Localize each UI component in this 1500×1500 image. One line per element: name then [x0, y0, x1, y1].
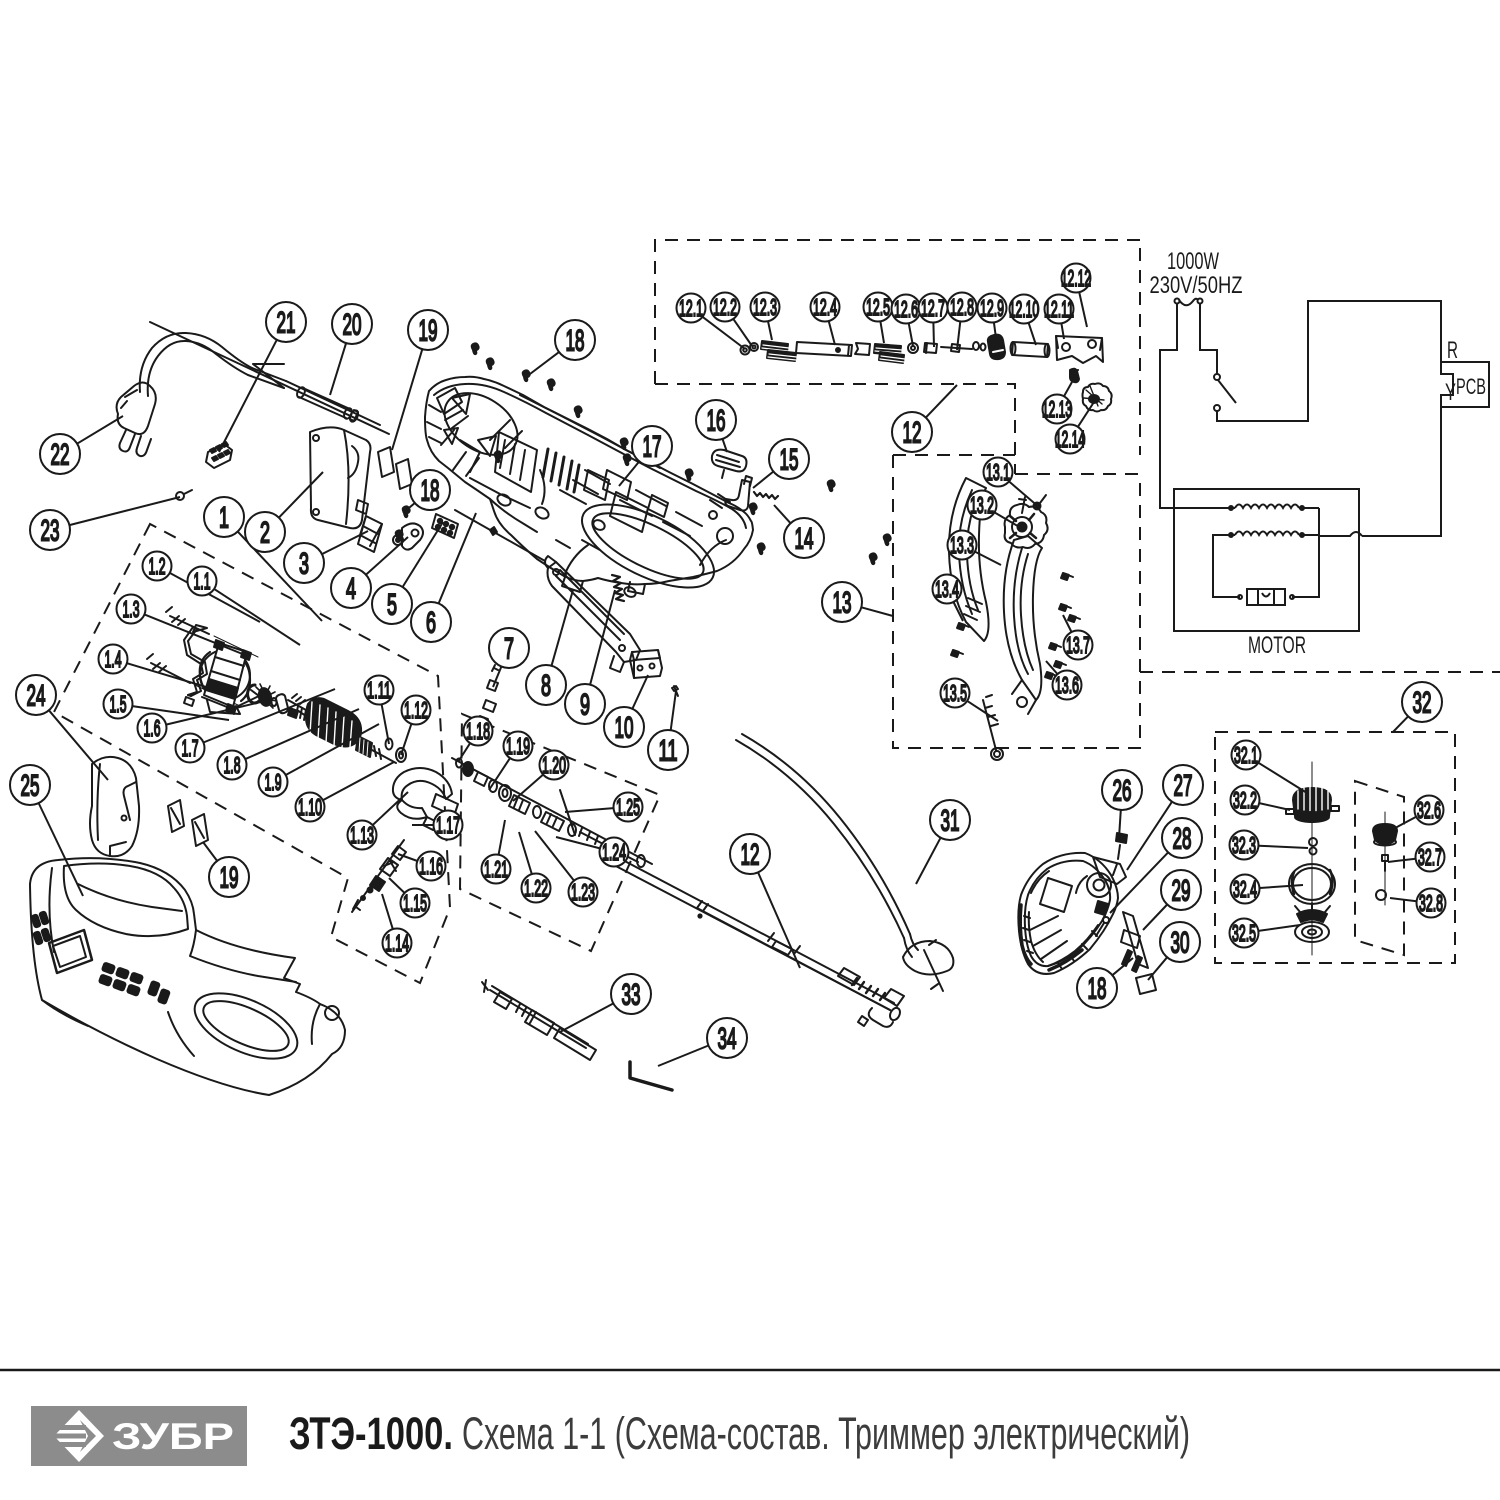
svg-text:18: 18: [1088, 973, 1107, 1006]
svg-text:11: 11: [659, 735, 678, 768]
svg-text:1.11: 1.11: [367, 677, 391, 703]
svg-text:21: 21: [277, 307, 296, 340]
svg-text:30: 30: [1171, 927, 1190, 960]
svg-text:7: 7: [504, 633, 514, 666]
svg-text:1.13: 1.13: [350, 822, 374, 848]
svg-text:1.9: 1.9: [265, 769, 282, 795]
svg-text:12.12: 12.12: [1061, 265, 1091, 291]
svg-text:1.22: 1.22: [524, 875, 548, 901]
svg-text:10: 10: [615, 712, 634, 745]
svg-text:Схема 1-1 (Схема-состав. Тримм: Схема 1-1 (Схема-состав. Триммер электри…: [462, 1408, 1190, 1459]
svg-text:1.8: 1.8: [224, 752, 241, 778]
svg-text:17: 17: [643, 431, 662, 464]
svg-text:5: 5: [387, 589, 397, 622]
svg-text:32: 32: [1413, 687, 1432, 720]
svg-text:25: 25: [21, 770, 40, 803]
svg-text:12.3: 12.3: [753, 294, 777, 320]
svg-text:15: 15: [780, 444, 799, 477]
svg-text:12.9: 12.9: [980, 295, 1004, 321]
svg-text:13.3: 13.3: [950, 532, 974, 558]
svg-text:12.6: 12.6: [894, 296, 918, 322]
svg-text:Y: Y: [1445, 379, 1456, 406]
svg-text:8: 8: [541, 670, 551, 703]
svg-text:32.5: 32.5: [1232, 920, 1256, 946]
svg-text:32.3: 32.3: [1232, 832, 1256, 858]
svg-text:1.1: 1.1: [194, 568, 211, 594]
svg-text:26: 26: [1113, 775, 1132, 808]
svg-text:13.4: 13.4: [935, 576, 959, 602]
svg-text:1.16: 1.16: [419, 853, 443, 879]
svg-text:29: 29: [1172, 875, 1191, 908]
svg-text:12.10: 12.10: [1009, 296, 1039, 322]
svg-text:1.25: 1.25: [616, 794, 640, 820]
svg-text:1.23: 1.23: [571, 879, 595, 905]
svg-text:1.15: 1.15: [403, 890, 427, 916]
svg-text:230V/50HZ: 230V/50HZ: [1150, 272, 1243, 299]
svg-text:22: 22: [51, 439, 70, 472]
svg-text:1.7: 1.7: [182, 735, 199, 761]
svg-text:1.6: 1.6: [144, 715, 161, 741]
svg-text:2: 2: [260, 517, 270, 550]
svg-text:12.8: 12.8: [950, 294, 974, 320]
svg-text:32.6: 32.6: [1417, 797, 1441, 823]
svg-text:1.10: 1.10: [298, 794, 322, 820]
svg-text:ЗТЭ-1000.: ЗТЭ-1000.: [289, 1408, 453, 1459]
svg-text:32.4: 32.4: [1233, 876, 1257, 902]
svg-text:1.21: 1.21: [484, 856, 508, 882]
svg-text:1.2: 1.2: [149, 553, 166, 579]
svg-text:16: 16: [707, 405, 726, 438]
svg-text:1.20: 1.20: [542, 752, 566, 778]
svg-text:33: 33: [622, 979, 641, 1012]
svg-text:32.8: 32.8: [1419, 890, 1443, 916]
svg-text:13: 13: [833, 587, 852, 620]
svg-text:32.7: 32.7: [1418, 844, 1442, 870]
svg-text:4: 4: [346, 573, 356, 606]
svg-text:1: 1: [219, 502, 229, 535]
svg-text:28: 28: [1173, 823, 1192, 856]
svg-text:32.2: 32.2: [1233, 787, 1257, 813]
svg-text:13.2: 13.2: [970, 492, 994, 518]
svg-text:1.24: 1.24: [602, 839, 626, 865]
svg-text:18: 18: [421, 475, 440, 508]
svg-text:34: 34: [718, 1023, 737, 1056]
svg-text:ЗУБР: ЗУБР: [112, 1416, 234, 1457]
svg-text:1.17: 1.17: [436, 812, 460, 838]
svg-text:19: 19: [419, 315, 438, 348]
svg-text:12.7: 12.7: [921, 295, 945, 321]
svg-text:1.5: 1.5: [110, 691, 127, 717]
svg-text:18: 18: [566, 325, 585, 358]
svg-text:1.4: 1.4: [105, 646, 122, 672]
svg-text:MOTOR: MOTOR: [1248, 632, 1306, 659]
svg-text:12.1: 12.1: [679, 295, 703, 321]
svg-text:1.19: 1.19: [506, 733, 530, 759]
svg-text:6: 6: [426, 607, 436, 640]
svg-text:27: 27: [1174, 770, 1193, 803]
svg-text:3: 3: [299, 548, 309, 581]
svg-text:12.13: 12.13: [1042, 396, 1072, 422]
svg-text:1.14: 1.14: [385, 930, 409, 956]
svg-text:19: 19: [220, 862, 239, 895]
svg-text:20: 20: [343, 309, 362, 342]
svg-text:1.18: 1.18: [466, 718, 490, 744]
svg-text:1000W: 1000W: [1167, 248, 1219, 275]
svg-text:14: 14: [795, 523, 814, 556]
svg-text:13.6: 13.6: [1055, 672, 1079, 698]
svg-text:1.3: 1.3: [123, 596, 140, 622]
svg-text:23: 23: [41, 515, 60, 548]
svg-text:12: 12: [903, 417, 922, 450]
svg-text:32.1: 32.1: [1234, 742, 1258, 768]
svg-text:13.7: 13.7: [1066, 632, 1090, 658]
svg-text:13.1: 13.1: [986, 459, 1010, 485]
svg-text:12.14: 12.14: [1055, 426, 1085, 452]
svg-text:PCB: PCB: [1456, 374, 1486, 399]
svg-text:1.12: 1.12: [404, 697, 428, 723]
svg-text:24: 24: [27, 680, 46, 713]
svg-text:31: 31: [941, 805, 960, 838]
svg-text:13.5: 13.5: [943, 680, 967, 706]
svg-text:9: 9: [580, 689, 590, 722]
svg-text:R: R: [1447, 337, 1458, 364]
svg-text:12: 12: [741, 839, 760, 872]
svg-text:12.5: 12.5: [866, 294, 890, 320]
svg-text:12.4: 12.4: [813, 294, 837, 320]
svg-text:12.2: 12.2: [713, 294, 737, 320]
svg-text:12.11: 12.11: [1044, 296, 1074, 322]
